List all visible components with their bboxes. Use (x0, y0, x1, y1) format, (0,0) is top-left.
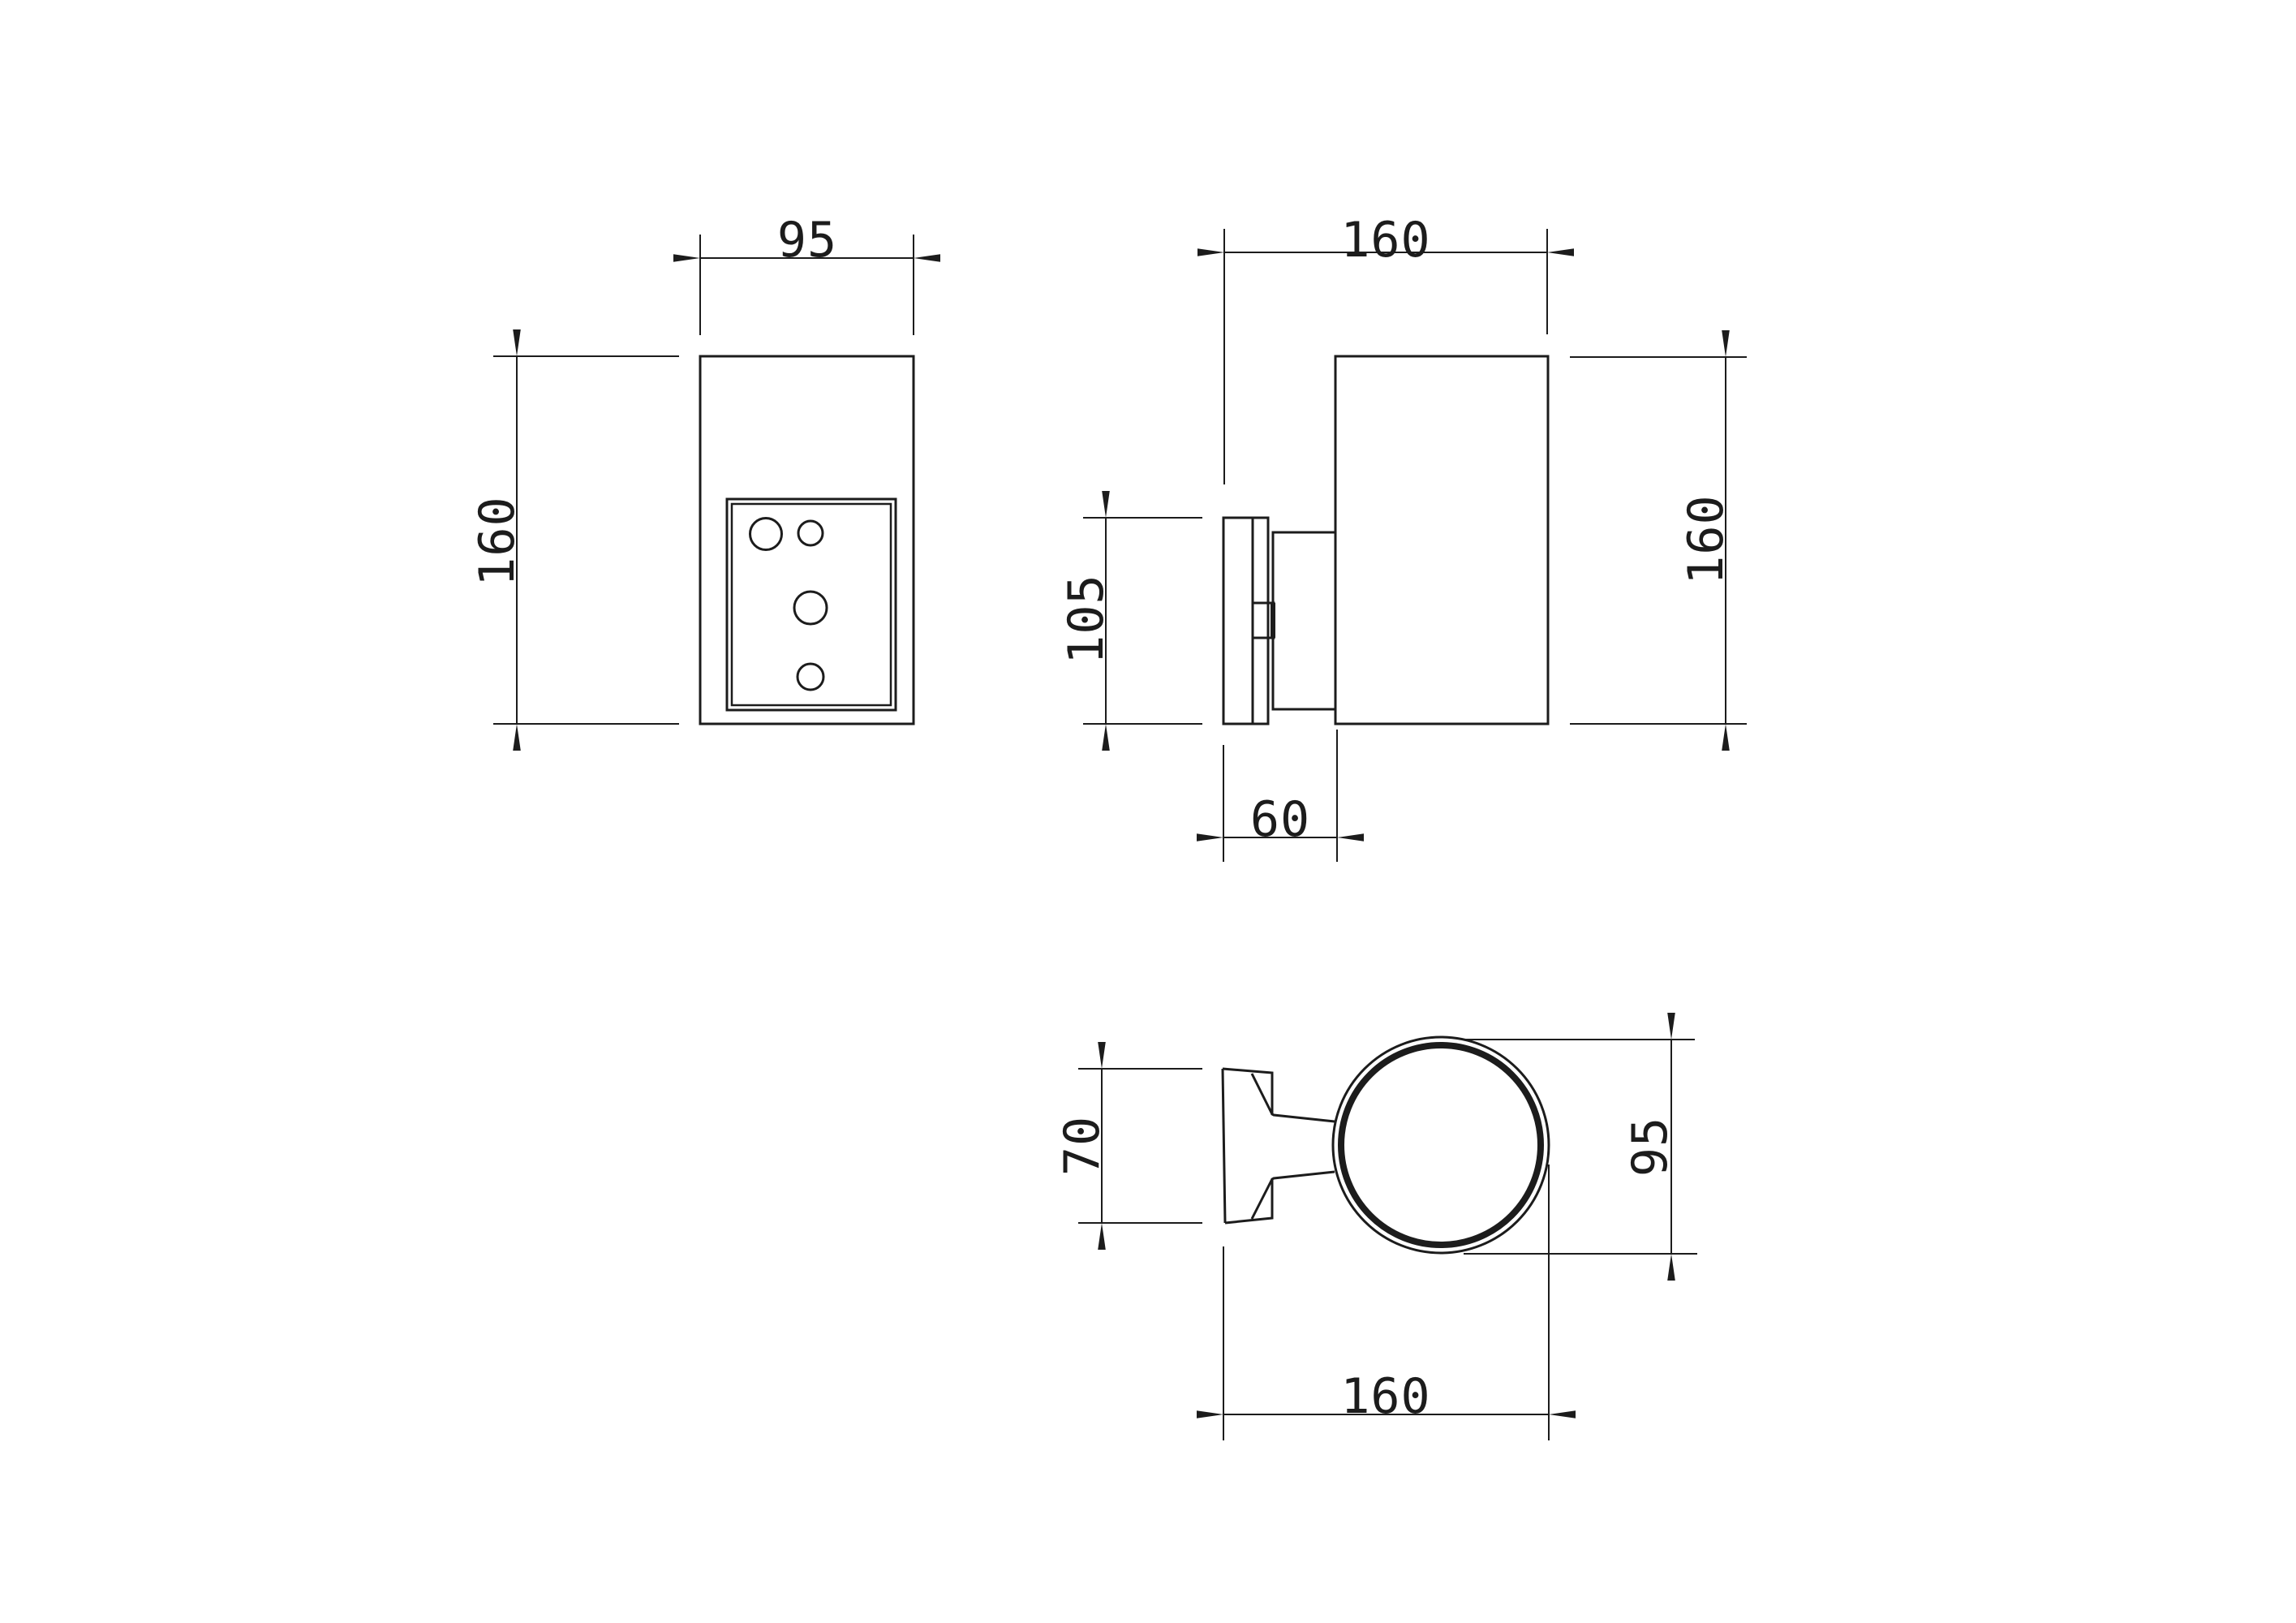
front-height-label: 160 (469, 496, 526, 586)
front-hole-middle (794, 592, 827, 624)
drawing-canvas: 95 160 160 105 (0, 0, 2296, 1623)
side-plate-height-dimension: 105 (1058, 518, 1202, 724)
top-body-inner-circle (1341, 1045, 1541, 1245)
side-body (1335, 356, 1548, 724)
front-hole-top-left (750, 519, 782, 550)
top-plate-wall-edge (1223, 1069, 1225, 1223)
front-width-label: 95 (777, 212, 837, 269)
front-height-dimension: 160 (469, 356, 679, 724)
side-plate-height-label: 105 (1058, 574, 1115, 664)
front-view: 95 160 (469, 212, 914, 724)
top-view: 70 95 160 (1054, 1037, 1697, 1440)
top-plate-upper-edge (1223, 1069, 1335, 1121)
top-body-outer-circle (1333, 1037, 1549, 1253)
side-bracket-depth-dimension: 60 (1223, 730, 1337, 862)
front-view-outline (700, 356, 914, 724)
side-view-outline (1223, 356, 1548, 724)
technical-drawing: 95 160 160 105 (0, 0, 2296, 1623)
top-diameter-label: 95 (1622, 1117, 1679, 1177)
side-bracket-depth-label: 60 (1250, 791, 1310, 848)
side-bracket (1273, 532, 1335, 709)
front-mount-plate-outer (727, 499, 896, 710)
top-plate-width-dimension: 70 (1054, 1069, 1202, 1223)
side-wall-plate (1223, 518, 1268, 724)
front-mount-plate-inner (732, 504, 891, 705)
side-height-label: 160 (1678, 494, 1735, 584)
top-plate-width-label: 70 (1054, 1116, 1111, 1176)
front-width-dimension: 95 (700, 212, 914, 335)
front-hole-bottom (798, 664, 823, 690)
top-depth-label: 160 (1340, 1368, 1430, 1425)
top-diameter-dimension: 95 (1464, 1040, 1697, 1254)
side-depth-dimension: 160 (1224, 212, 1547, 484)
top-plate-lower-edge (1225, 1172, 1335, 1223)
side-height-dimension: 160 (1570, 357, 1747, 724)
side-view: 160 105 160 60 (1058, 212, 1747, 862)
front-hole-top-right (798, 521, 823, 545)
side-depth-label: 160 (1340, 212, 1430, 269)
top-view-outline (1223, 1037, 1549, 1253)
